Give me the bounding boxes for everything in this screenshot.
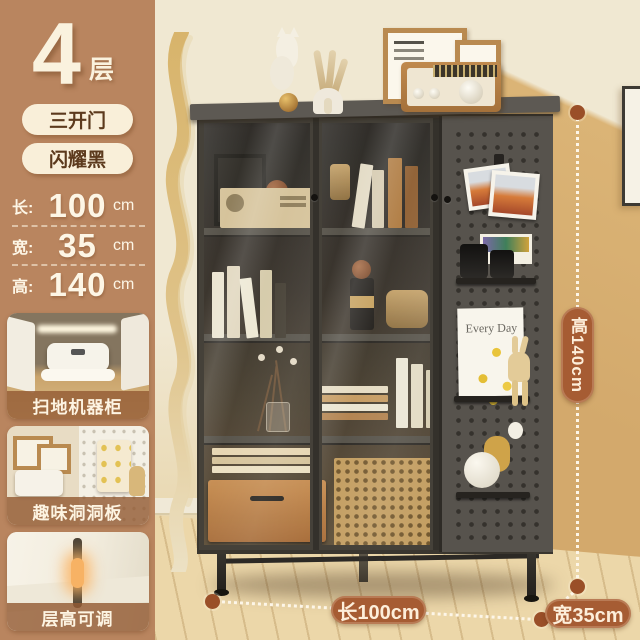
product-card: 4 层 三开门 闪耀黑 长: 100 cm 宽: 35 cm 高: 140 cm — [0, 0, 640, 640]
dim-length-label: 长: — [12, 194, 42, 218]
radio-knob — [413, 88, 424, 99]
dim-width: 宽: 35 cm — [12, 225, 145, 264]
robot-screen — [71, 349, 85, 355]
feature-robot-vacuum-cabinet: 扫地机器柜 — [7, 313, 149, 419]
door-knob — [431, 194, 438, 201]
tier-badge: 4 层 — [0, 0, 155, 96]
radio — [15, 470, 63, 496]
bear-figurine — [464, 434, 526, 492]
white-ball — [464, 452, 500, 488]
dim-length-value: 100 — [42, 187, 113, 225]
camera-lens — [460, 244, 488, 278]
dim-height: 高: 140 cm — [12, 264, 145, 303]
cat-figurine — [129, 466, 145, 496]
sculpture-base — [270, 56, 294, 90]
glass-door-left — [199, 118, 315, 550]
cabinet-leg — [217, 548, 226, 592]
dimension-dot-left — [205, 594, 220, 609]
gold-ball — [279, 93, 298, 112]
feature-thumbnails: 扫地机器柜 趣味洞洞板 — [0, 313, 155, 631]
tier-number: 4 — [32, 12, 81, 96]
tag-color-black: 闪耀黑 — [22, 143, 133, 174]
tag-three-doors: 三开门 — [22, 104, 133, 135]
pinned-photo — [488, 170, 540, 220]
feature-adjustable-shelf: 层高可调 — [7, 532, 149, 631]
dimension-dot-bottom-right — [570, 579, 585, 594]
product-photo: Every Day — [155, 0, 640, 640]
arch-vase — [313, 88, 343, 114]
glow-highlight — [71, 558, 84, 588]
cabinet-door-right — [121, 313, 149, 391]
height-annotation: 高140cm — [561, 307, 594, 403]
bunny-leg — [512, 380, 518, 406]
dim-length: 长: 100 cm — [12, 186, 145, 225]
dimension-list: 长: 100 cm 宽: 35 cm 高: 140 cm — [12, 186, 145, 303]
cabinet-floor-shadow — [210, 572, 555, 598]
balloon — [508, 422, 523, 439]
dim-height-unit: cm — [113, 276, 145, 294]
camera-lens — [490, 250, 514, 278]
radio-dial — [433, 65, 497, 77]
dim-width-label: 宽: — [12, 234, 42, 258]
door-knob — [444, 196, 451, 203]
dim-height-value: 140 — [42, 266, 113, 304]
robot-dock — [41, 369, 115, 381]
lemon-illustration — [492, 348, 501, 357]
robot-vacuum — [47, 343, 109, 371]
info-sidebar: 4 层 三开门 闪耀黑 长: 100 cm 宽: 35 cm 高: 140 cm — [0, 0, 155, 640]
cabinet-light — [37, 325, 117, 333]
vintage-radio-top — [401, 62, 501, 112]
door-knob — [311, 194, 318, 201]
radio-knob — [459, 80, 483, 104]
dim-width-unit: cm — [113, 237, 145, 255]
frame-art — [394, 41, 424, 44]
peg-shelf — [456, 492, 530, 498]
bunny-leg — [522, 380, 528, 406]
radio-knob — [429, 88, 440, 99]
pegboard-door: Every Day — [439, 116, 553, 552]
bunny-figurine — [504, 338, 538, 410]
dim-height-label: 高: — [12, 273, 42, 297]
tier-unit: 层 — [89, 50, 114, 86]
dim-length-unit: cm — [113, 197, 145, 215]
dimension-dot-top — [570, 105, 585, 120]
cabinet-door-left — [7, 315, 35, 393]
glass-door-middle — [317, 118, 435, 550]
feature-caption: 层高可调 — [7, 603, 149, 631]
feature-caption: 扫地机器柜 — [7, 391, 149, 419]
width-annotation: 宽35cm — [545, 599, 631, 628]
leg-foot — [524, 595, 539, 602]
feature-caption: 趣味洞洞板 — [7, 497, 149, 525]
book-title: Every Day — [465, 321, 519, 335]
cabinet-leg — [527, 548, 536, 598]
wall-picture-frame — [622, 86, 640, 206]
hanging-bag — [97, 440, 131, 492]
length-annotation: 长100cm — [331, 596, 426, 624]
door-stile — [313, 118, 319, 550]
pampas-grass — [303, 38, 355, 114]
dim-width-value: 35 — [42, 227, 113, 265]
cabinet-body: Every Day — [197, 114, 553, 554]
feature-pegboard: 趣味洞洞板 — [7, 426, 149, 525]
peg-shelf — [456, 278, 536, 284]
cat-sculpture — [268, 34, 306, 98]
bunny-body — [508, 352, 530, 382]
